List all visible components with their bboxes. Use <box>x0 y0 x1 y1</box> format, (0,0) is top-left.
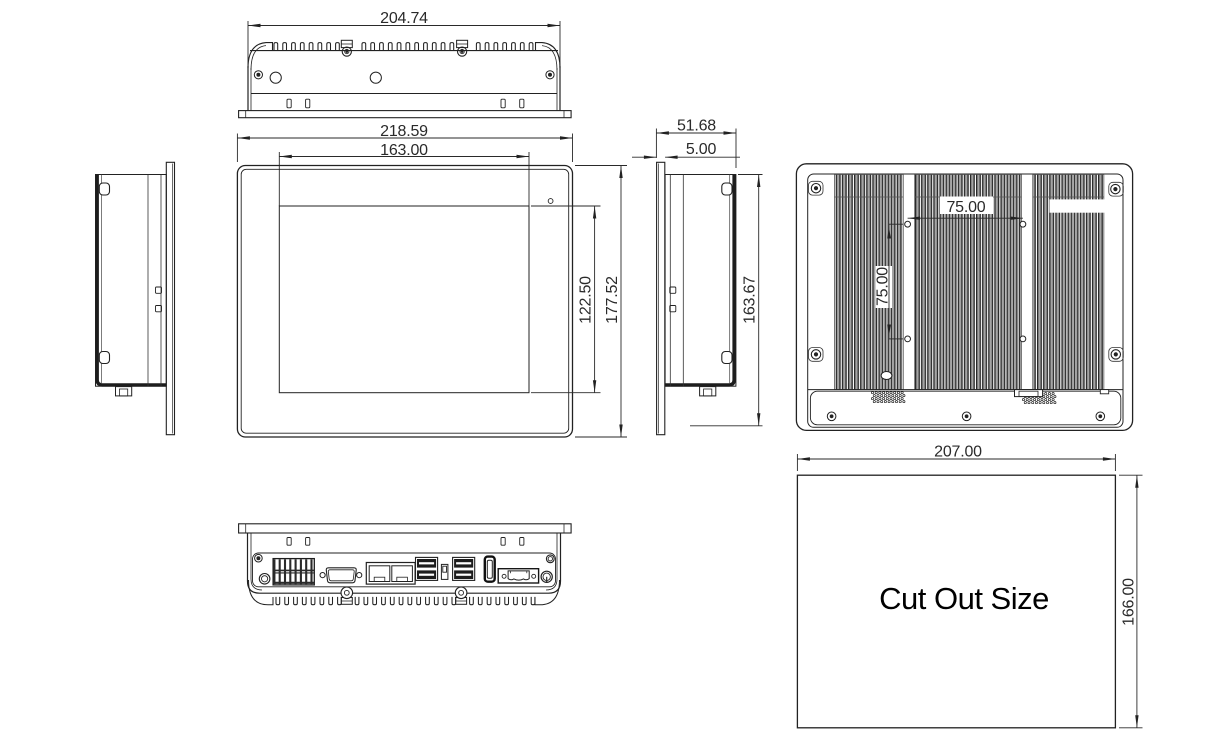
svg-text:51.68: 51.68 <box>677 117 716 134</box>
svg-text:75.00: 75.00 <box>875 267 892 306</box>
svg-text:163.00: 163.00 <box>380 142 428 159</box>
svg-text:163.67: 163.67 <box>742 276 759 324</box>
svg-text:75.00: 75.00 <box>946 199 985 216</box>
svg-text:166.00: 166.00 <box>1121 578 1138 626</box>
svg-text:122.50: 122.50 <box>578 276 595 324</box>
svg-text:Cut Out Size: Cut Out Size <box>879 581 1049 616</box>
svg-text:207.00: 207.00 <box>934 443 982 460</box>
svg-text:218.59: 218.59 <box>380 123 428 140</box>
svg-text:177.52: 177.52 <box>604 276 621 324</box>
svg-text:204.74: 204.74 <box>380 10 428 27</box>
svg-text:5.00: 5.00 <box>686 141 717 158</box>
